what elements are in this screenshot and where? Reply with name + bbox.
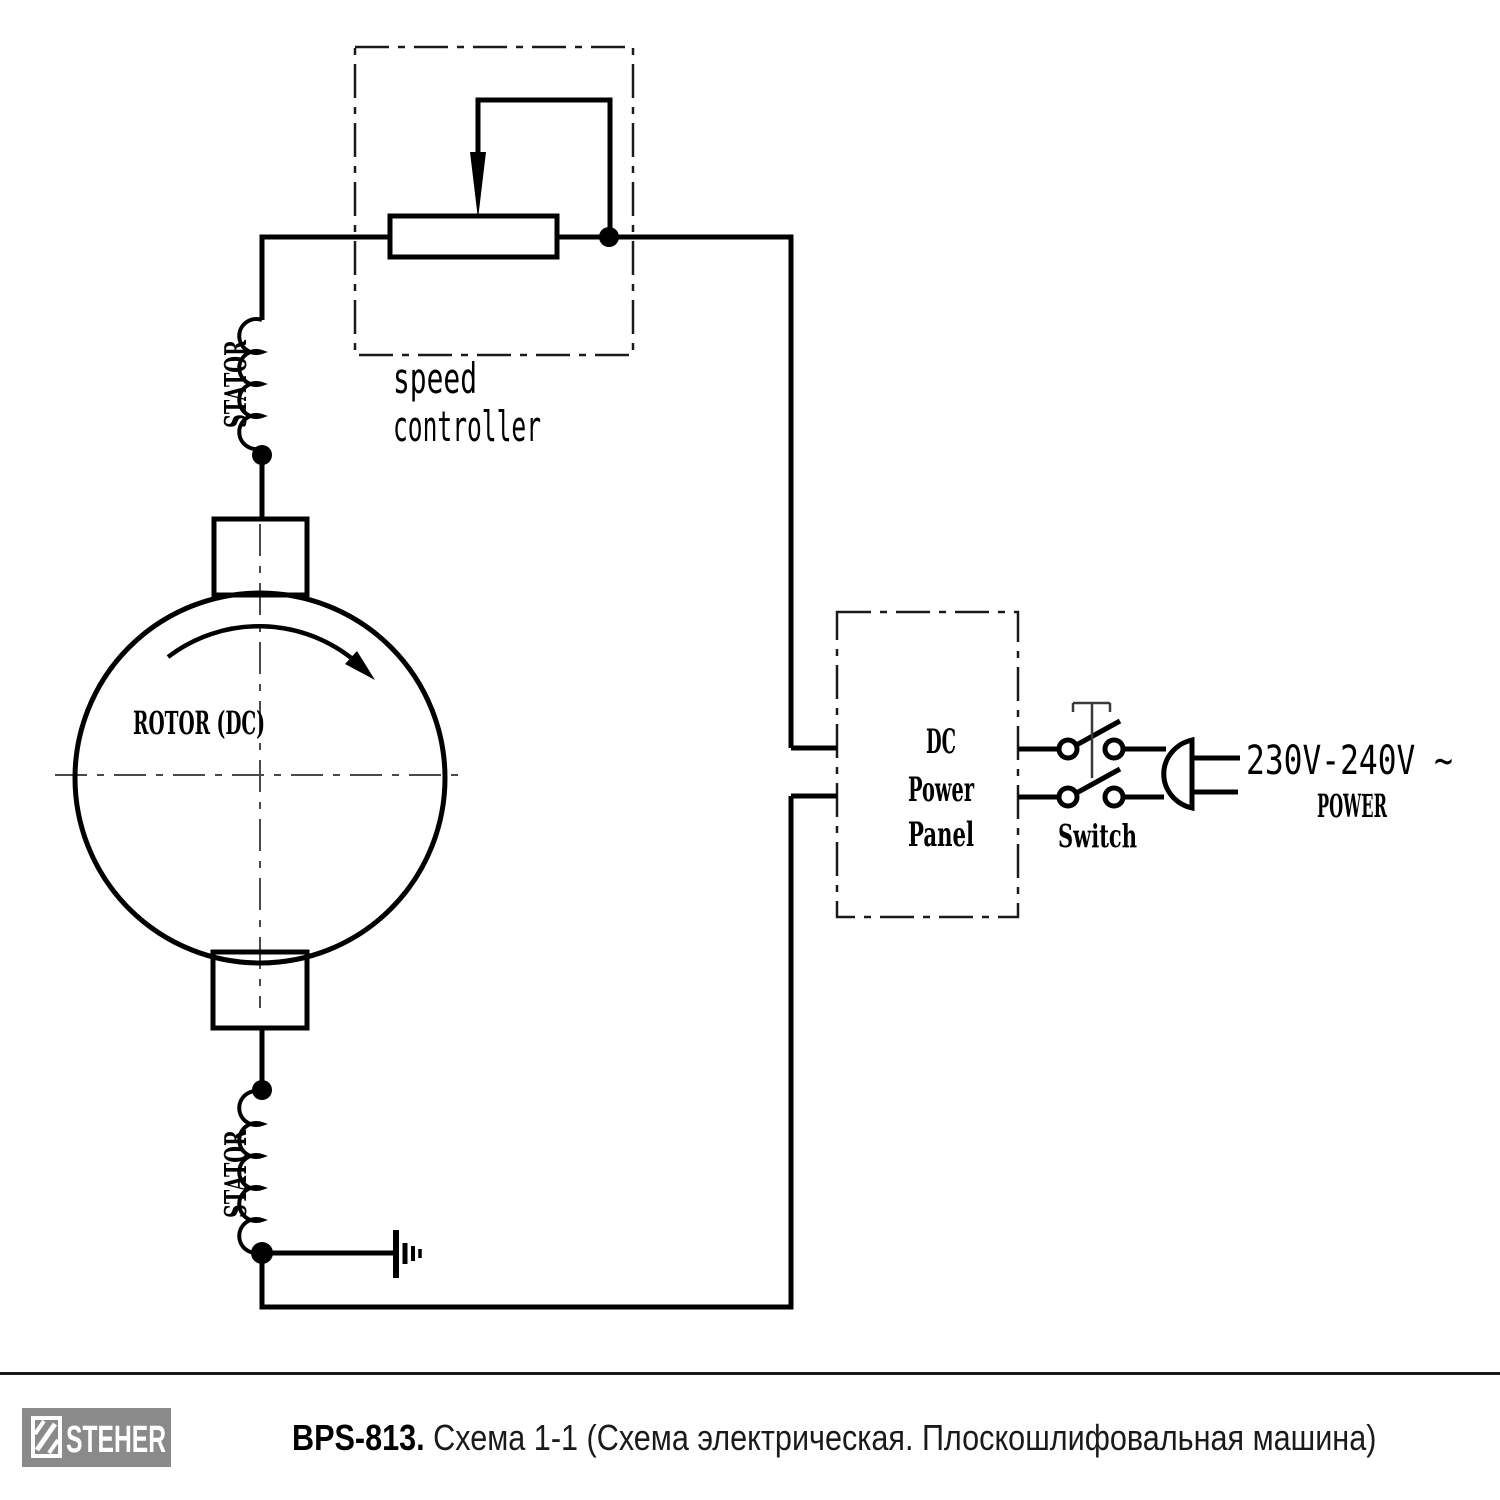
logo-brand-text: STEHER (66, 1419, 166, 1461)
footer: STEHER BPS-813. Схема 1-1 (Схема электри… (0, 1372, 1500, 1500)
ground-symbol (262, 1230, 420, 1278)
rotor-label: ROTOR (DC) (133, 704, 265, 742)
voltage-label: 230V-240V ~ (1246, 738, 1453, 784)
power-panel-label-line1: DC (926, 722, 956, 762)
stator-bottom-label: STATOR (219, 1129, 254, 1218)
potentiometer-wiper-loop-wire (478, 100, 610, 228)
speed-controller-box (355, 47, 633, 355)
footer-caption-text: Схема 1-1 (Схема электрическая. Плоскошл… (433, 1417, 1376, 1458)
potentiometer-wiper-arrow (470, 152, 486, 219)
switch-label: Switch (1058, 817, 1137, 855)
rotation-arrow-arc (168, 626, 355, 661)
switch-symbol (1018, 703, 1166, 806)
switch-contact-circle (1059, 740, 1077, 758)
plug-body (1164, 740, 1192, 808)
switch-contact-circle (1059, 788, 1077, 806)
switch-contact-circle (1105, 740, 1123, 758)
power-panel-label-line3: Panel (908, 815, 974, 855)
footer-model-number: BPS-813. (292, 1417, 425, 1458)
power-plug (1164, 740, 1240, 808)
wire-resistor-to-stator-top (262, 237, 390, 320)
power-panel-label-line2: Power (908, 770, 975, 810)
wire-resistor-to-panel (557, 237, 791, 748)
wire-bottom-return (262, 796, 791, 1307)
stator-top-label: STATOR (219, 339, 254, 428)
switch-actuator (1073, 703, 1110, 778)
footer-caption: BPS-813. Схема 1-1 (Схема электрическая.… (292, 1417, 1376, 1459)
dc-power-panel-box (837, 612, 1018, 917)
potentiometer-body (390, 216, 557, 257)
schematic-page: speed controller ROTOR (DC) STATOR STATO… (0, 0, 1500, 1500)
speed-controller-label-line2: controller (393, 402, 541, 451)
power-label: POWER (1317, 787, 1387, 825)
switch-contact-circle (1105, 788, 1123, 806)
junction-dot (599, 227, 619, 247)
schematic-canvas: speed controller ROTOR (DC) STATOR STATO… (0, 0, 1500, 1376)
steher-logo: STEHER (22, 1408, 171, 1467)
speed-controller-label-line1: speed (393, 354, 477, 403)
